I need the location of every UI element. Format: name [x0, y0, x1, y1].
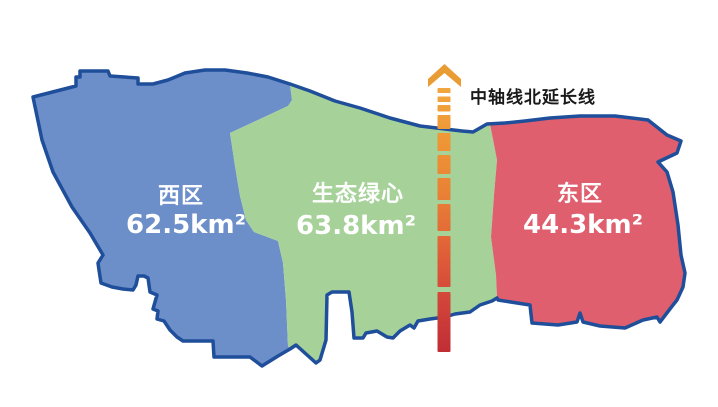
axis-dashed-line: [438, 88, 451, 352]
district-map-canvas: 中轴线北延长线 西区 62.5km² 生态绿心 63.8km² 东区 44.3k…: [0, 0, 718, 407]
axis-north-arrow-icon: [428, 64, 461, 87]
region-west-label: 西区: [158, 184, 204, 209]
region-east-label: 东区: [557, 181, 603, 207]
region-west-area: 62.5km²: [126, 210, 246, 240]
axis-label: 中轴线北延长线: [470, 87, 596, 108]
district-map: 中轴线北延长线 西区 62.5km² 生态绿心 63.8km² 东区 44.3k…: [0, 0, 718, 407]
region-east-area: 44.3km²: [523, 210, 643, 240]
region-green-heart-label: 生态绿心: [312, 181, 404, 207]
region-green-heart-area: 63.8km²: [296, 211, 416, 241]
